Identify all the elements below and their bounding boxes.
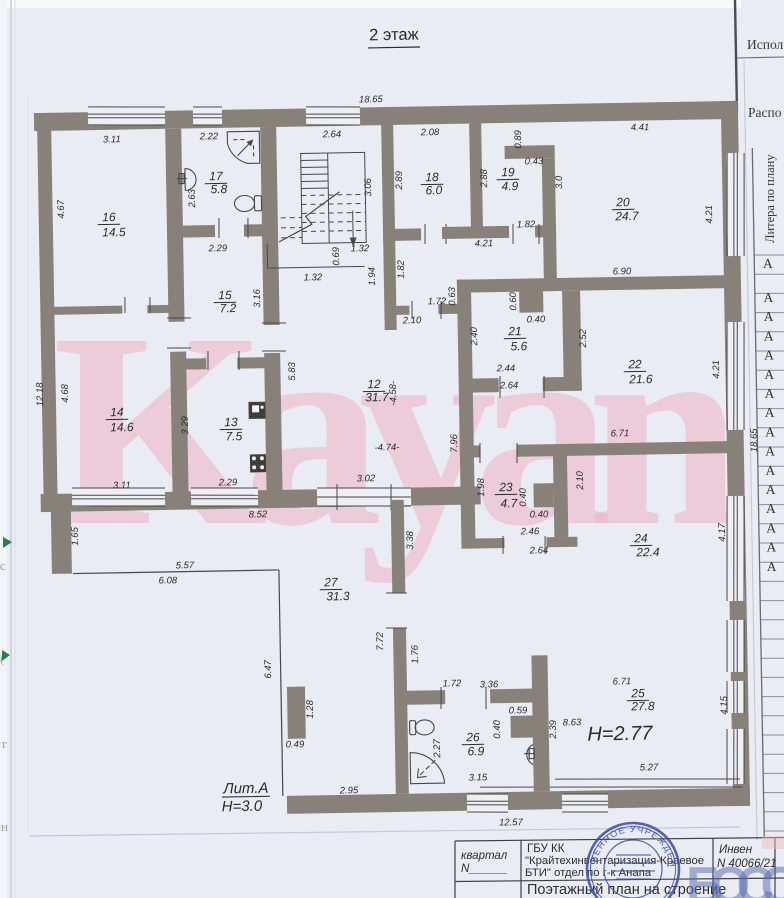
- svg-text:А: А: [766, 501, 776, 516]
- svg-text:6.0: 6.0: [425, 183, 442, 197]
- svg-text:0.40: 0.40: [518, 487, 529, 506]
- svg-text:2.95: 2.95: [339, 785, 359, 796]
- svg-text:8.52: 8.52: [249, 509, 268, 520]
- svg-text:А: А: [764, 348, 774, 363]
- svg-text:6.47: 6.47: [263, 659, 274, 678]
- svg-text:2.88: 2.88: [479, 168, 490, 188]
- svg-text:ГБУ КК: ГБУ КК: [527, 843, 565, 855]
- svg-text:А: А: [764, 367, 774, 382]
- svg-text:А: А: [766, 482, 776, 497]
- svg-text:квартал: квартал: [461, 850, 508, 862]
- svg-text:0.40: 0.40: [530, 509, 549, 520]
- svg-text:8.63: 8.63: [563, 717, 582, 728]
- svg-text:19: 19: [501, 165, 515, 179]
- svg-text:1.72: 1.72: [443, 678, 462, 689]
- svg-text:2.22: 2.22: [199, 131, 219, 142]
- svg-text:21.6: 21.6: [628, 372, 653, 386]
- svg-text:6.71: 6.71: [611, 428, 630, 439]
- svg-text:12.18: 12.18: [35, 382, 46, 407]
- svg-text:0.60: 0.60: [508, 291, 519, 310]
- svg-text:-4.58-: -4.58-: [388, 381, 399, 406]
- svg-text:А: А: [764, 309, 774, 324]
- svg-text:4.15: 4.15: [719, 695, 730, 714]
- svg-text:1.98: 1.98: [476, 477, 487, 496]
- svg-text:А: А: [764, 290, 774, 305]
- svg-text:3.06: 3.06: [363, 177, 374, 196]
- svg-text:2.10: 2.10: [402, 315, 422, 326]
- svg-text:1.72: 1.72: [428, 296, 447, 307]
- svg-text:Лит.А: Лит.А: [222, 780, 268, 798]
- svg-text:г: г: [2, 736, 7, 751]
- svg-text:3.36: 3.36: [480, 679, 499, 690]
- svg-text:6.90: 6.90: [613, 266, 632, 277]
- svg-text:18: 18: [425, 170, 439, 184]
- svg-text:4.9: 4.9: [501, 179, 518, 193]
- svg-text:4.67: 4.67: [56, 199, 67, 218]
- svg-text:0.40: 0.40: [492, 719, 503, 738]
- svg-text:2.52: 2.52: [578, 328, 589, 348]
- svg-text:14.5: 14.5: [102, 225, 126, 239]
- svg-text:0.89: 0.89: [513, 129, 524, 148]
- svg-text:6.08: 6.08: [159, 575, 178, 586]
- svg-text:Распо: Распо: [748, 105, 782, 120]
- svg-text:24: 24: [633, 531, 648, 545]
- svg-text:2.39: 2.39: [548, 719, 559, 739]
- svg-text:1.65: 1.65: [70, 526, 81, 545]
- svg-text:18.65: 18.65: [749, 428, 760, 453]
- svg-text:2 этаж: 2 этаж: [369, 26, 419, 45]
- svg-text:0.49: 0.49: [286, 739, 305, 750]
- svg-text:Инвен: Инвен: [719, 844, 753, 856]
- svg-text:Испол: Испол: [747, 37, 784, 52]
- svg-text:3.29: 3.29: [180, 415, 191, 434]
- svg-text:1.28: 1.28: [305, 699, 316, 718]
- svg-text:5.8: 5.8: [210, 182, 227, 196]
- svg-text:25: 25: [630, 686, 645, 700]
- svg-text:24.7: 24.7: [614, 209, 640, 223]
- svg-text:3.11: 3.11: [103, 134, 121, 145]
- svg-text:13: 13: [224, 415, 238, 429]
- svg-text:N______: N______: [461, 863, 508, 875]
- svg-text:7.96: 7.96: [449, 433, 460, 452]
- svg-text:2.46: 2.46: [520, 526, 540, 537]
- svg-text:н: н: [1, 819, 8, 834]
- svg-text:26: 26: [465, 730, 480, 744]
- svg-text:А: А: [765, 444, 775, 459]
- svg-text:А: А: [764, 328, 774, 343]
- svg-text:3.16: 3.16: [252, 288, 263, 307]
- svg-text:16: 16: [102, 210, 116, 224]
- svg-text:2.27: 2.27: [432, 738, 443, 758]
- svg-text:21: 21: [507, 324, 522, 338]
- svg-text:27.8: 27.8: [630, 699, 655, 713]
- svg-text:4.21: 4.21: [704, 205, 715, 224]
- svg-text:А: А: [766, 463, 776, 478]
- svg-text:3.38: 3.38: [405, 530, 416, 549]
- svg-text:4.17: 4.17: [717, 522, 728, 541]
- svg-text:3.11: 3.11: [113, 480, 131, 491]
- svg-text:4.21: 4.21: [711, 360, 722, 379]
- svg-text:1.82: 1.82: [396, 259, 407, 278]
- svg-text:23: 23: [498, 480, 513, 494]
- svg-text:1.94: 1.94: [367, 267, 378, 286]
- svg-text:2.29: 2.29: [218, 477, 238, 488]
- svg-text:А: А: [767, 559, 777, 574]
- svg-text:А: А: [765, 405, 775, 420]
- svg-text:6.71: 6.71: [613, 676, 632, 687]
- svg-text:1.32: 1.32: [351, 243, 370, 254]
- svg-text:А: А: [767, 540, 777, 555]
- svg-text:3.02: 3.02: [357, 473, 376, 484]
- svg-text:31.7: 31.7: [365, 390, 390, 404]
- svg-text:6.9: 6.9: [467, 744, 484, 758]
- svg-text:3.0: 3.0: [554, 175, 565, 189]
- svg-text:А: А: [765, 386, 775, 401]
- svg-text:31.3: 31.3: [326, 589, 350, 603]
- svg-text:5.6: 5.6: [510, 339, 527, 353]
- svg-text:2.08: 2.08: [420, 127, 440, 138]
- svg-text:2.64: 2.64: [529, 545, 549, 556]
- svg-text:5.83: 5.83: [287, 361, 298, 380]
- svg-text:4.21: 4.21: [475, 238, 494, 249]
- svg-text:5.57: 5.57: [176, 560, 195, 571]
- svg-text:1.82: 1.82: [517, 219, 536, 230]
- svg-text:20: 20: [615, 195, 630, 209]
- svg-text:14: 14: [110, 405, 124, 419]
- svg-text:0.40: 0.40: [527, 314, 546, 325]
- svg-text:2.89: 2.89: [394, 170, 405, 190]
- svg-text:5.27: 5.27: [640, 762, 659, 773]
- svg-text:12: 12: [367, 377, 381, 391]
- svg-text:7.5: 7.5: [225, 429, 242, 443]
- svg-text:2.64: 2.64: [322, 129, 342, 140]
- svg-text:3.15: 3.15: [469, 772, 488, 783]
- svg-text:-4.74-: -4.74-: [374, 442, 399, 453]
- svg-text:0.43: 0.43: [525, 156, 544, 167]
- svg-text:18.65: 18.65: [359, 94, 384, 105]
- svg-text:4.68: 4.68: [60, 383, 71, 402]
- svg-text:0.59: 0.59: [509, 705, 528, 716]
- svg-text:2.29: 2.29: [208, 243, 228, 254]
- svg-text:0.69: 0.69: [331, 246, 342, 265]
- svg-text:1.76: 1.76: [410, 644, 421, 663]
- svg-text:2.63: 2.63: [187, 188, 198, 208]
- svg-text:Литера по плану: Литера по плану: [763, 154, 777, 243]
- svg-text:4.41: 4.41: [631, 122, 650, 133]
- svg-text:22.4: 22.4: [635, 545, 660, 559]
- svg-text:А: А: [763, 256, 773, 271]
- svg-text:27: 27: [323, 575, 339, 589]
- svg-text:Н=3.0: Н=3.0: [222, 798, 263, 816]
- svg-text:1.32: 1.32: [304, 272, 323, 283]
- svg-text:Н=2.77: Н=2.77: [587, 722, 653, 745]
- svg-text:А: А: [766, 520, 776, 535]
- svg-text:БОСС: БОСС: [686, 857, 784, 898]
- svg-text:7.2: 7.2: [219, 301, 236, 315]
- svg-text:2.64: 2.64: [499, 380, 519, 391]
- svg-text:2.10: 2.10: [575, 470, 586, 490]
- svg-text:2.44: 2.44: [496, 363, 516, 374]
- svg-text:7.72: 7.72: [375, 631, 386, 650]
- svg-text:22: 22: [627, 357, 642, 371]
- svg-text:2.40: 2.40: [469, 326, 480, 346]
- svg-text:12.57: 12.57: [499, 817, 524, 828]
- svg-text:15: 15: [218, 288, 232, 302]
- svg-text:0.63: 0.63: [447, 286, 458, 305]
- svg-text:с: с: [0, 558, 6, 573]
- svg-text:14.6: 14.6: [110, 420, 134, 434]
- svg-text:4.7: 4.7: [501, 496, 519, 510]
- svg-text:А: А: [765, 424, 775, 439]
